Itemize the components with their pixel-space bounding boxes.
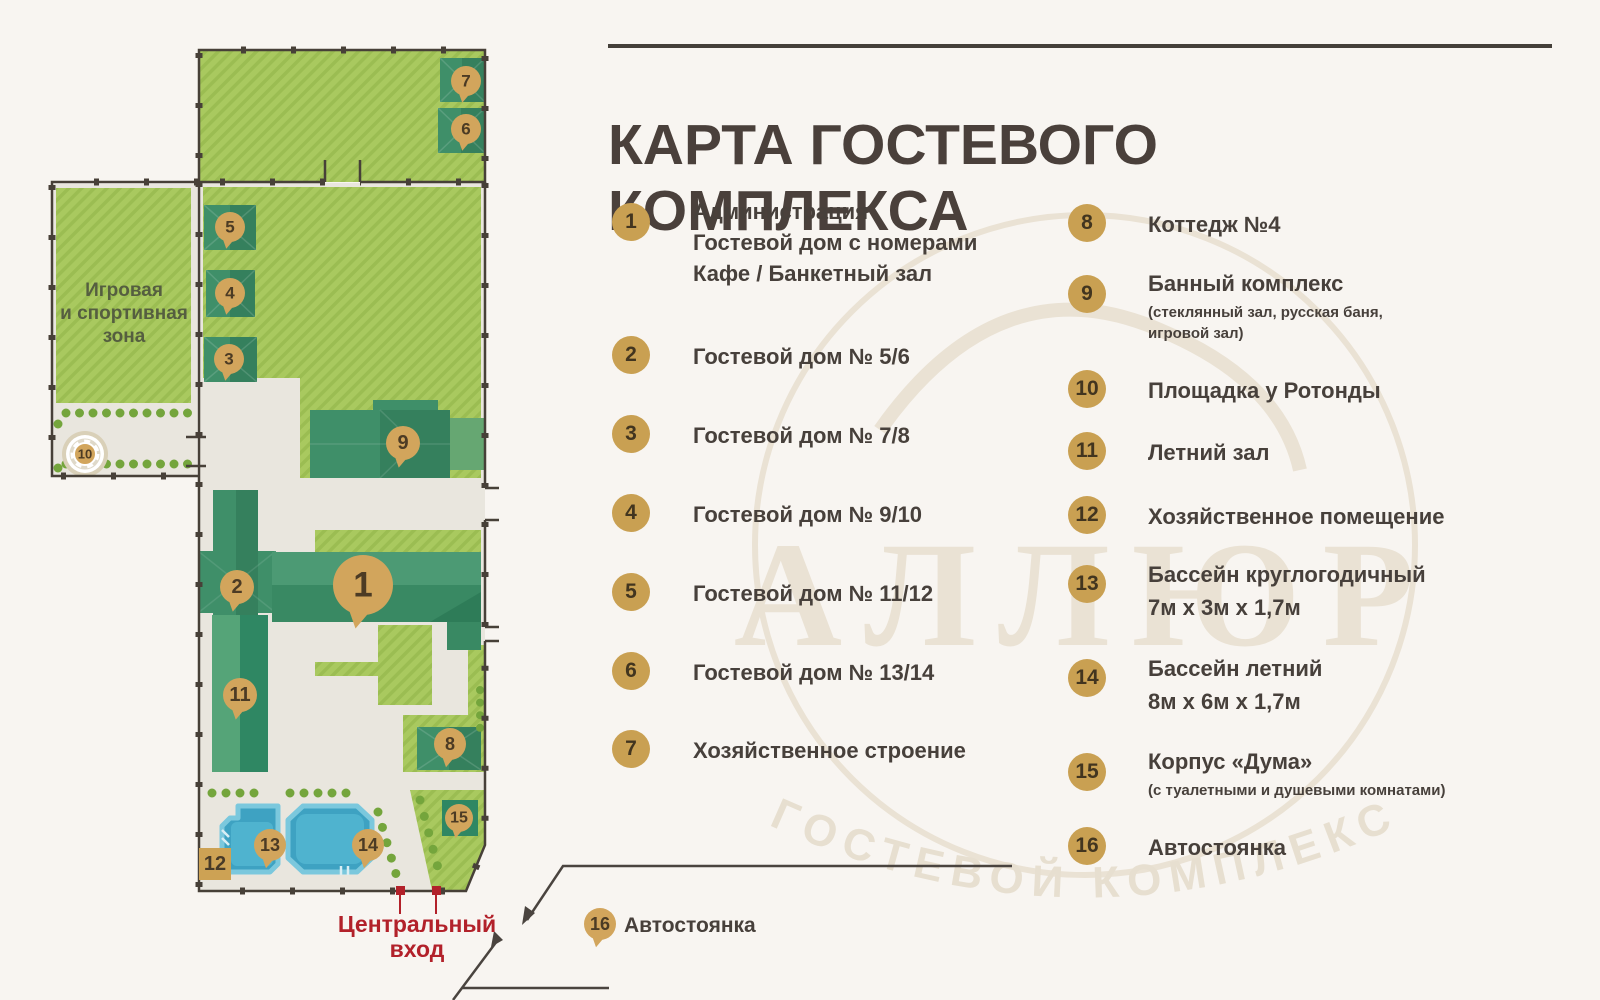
svg-text:13: 13: [260, 835, 280, 855]
legend-item-16: Автостоянка: [1148, 832, 1568, 863]
legend-num-8: 8: [1068, 204, 1106, 242]
legend-num-11: 11: [1068, 432, 1106, 470]
legend-item-10: Площадка у Ротонды: [1148, 375, 1568, 406]
entrance-label-line1: Центральный: [338, 911, 496, 937]
legend-num-3: 3: [612, 415, 650, 453]
svg-text:зона: зона: [103, 326, 146, 347]
legend-num-10: 10: [1068, 370, 1106, 408]
legend-num-1: 1: [612, 203, 650, 241]
legend-num-7: 7: [612, 730, 650, 768]
pools: [222, 806, 372, 875]
legend-item-7: Хозяйственное строение: [693, 735, 1113, 766]
legend-num-5: 5: [612, 573, 650, 611]
legend-note-15: (с туалетными и душевыми комнатами): [1148, 780, 1568, 801]
svg-text:8: 8: [445, 734, 455, 754]
legend-item-12: Хозяйственное помещение: [1148, 501, 1568, 532]
svg-text:и спортивная: и спортивная: [60, 303, 188, 324]
legend-item-11: Летний зал: [1148, 437, 1568, 468]
svg-text:3: 3: [224, 350, 233, 369]
side-gates: [485, 488, 499, 641]
legend-num-6: 6: [612, 652, 650, 690]
legend-item-15: Корпус «Дума» (с туалетными и душевыми к…: [1148, 746, 1568, 801]
map-marker-10: 10: [74, 443, 96, 465]
legend-num-12: 12: [1068, 496, 1106, 534]
legend-item-6: Гостевой дом № 13/14: [693, 657, 1113, 688]
legend-item-14: Бассейн летний 8м х 6м х 1,7м: [1148, 652, 1568, 718]
svg-text:14: 14: [358, 835, 378, 855]
svg-text:1: 1: [353, 566, 372, 605]
svg-text:10: 10: [78, 447, 92, 462]
title-rule: [608, 44, 1552, 48]
svg-text:2: 2: [231, 576, 242, 598]
legend-item-1: Администрация Гостевой дом с номерами Ка…: [693, 196, 1113, 289]
legend-num-15: 15: [1068, 753, 1106, 791]
svg-text:15: 15: [450, 810, 468, 827]
storage-tag-12: 12: [199, 848, 231, 880]
legend-item-9: Банный комплекс (стеклянный зал, русская…: [1148, 268, 1568, 344]
svg-text:5: 5: [225, 218, 234, 237]
central-entrance: Центральный вход: [338, 886, 496, 962]
legend-item-4: Гостевой дом № 9/10: [693, 499, 1113, 530]
legend-item-5: Гостевой дом № 11/12: [693, 578, 1113, 609]
svg-text:11: 11: [229, 684, 250, 706]
legend-num-9: 9: [1068, 275, 1106, 313]
svg-text:6: 6: [461, 120, 470, 139]
svg-text:Игровая: Игровая: [85, 280, 163, 301]
svg-text:16: 16: [590, 914, 610, 934]
entrance-label-line2: вход: [390, 936, 445, 962]
legend-item-3: Гостевой дом № 7/8: [693, 420, 1113, 451]
svg-text:4: 4: [225, 284, 235, 303]
svg-text:12: 12: [204, 853, 226, 875]
poster: АЛЛЮР ГОСТЕВОЙ КОМПЛЕКС: [0, 0, 1600, 1000]
legend-note-9: (стеклянный зал, русская баня, игровой з…: [1148, 302, 1403, 344]
parking-label: Автостоянка: [624, 914, 756, 937]
legend-num-4: 4: [612, 494, 650, 532]
legend-num-14: 14: [1068, 659, 1106, 697]
legend-item-2: Гостевой дом № 5/6: [693, 341, 1113, 372]
svg-text:7: 7: [461, 72, 470, 91]
legend-item-8: Коттедж №4: [1148, 209, 1568, 240]
svg-text:9: 9: [397, 432, 408, 454]
legend-num-2: 2: [612, 336, 650, 374]
legend-num-16: 16: [1068, 827, 1106, 865]
legend-num-13: 13: [1068, 565, 1106, 603]
legend-item-13: Бассейн круглогодичный 7м х 3м х 1,7м: [1148, 558, 1568, 624]
map-marker-16: 16: [584, 908, 616, 947]
